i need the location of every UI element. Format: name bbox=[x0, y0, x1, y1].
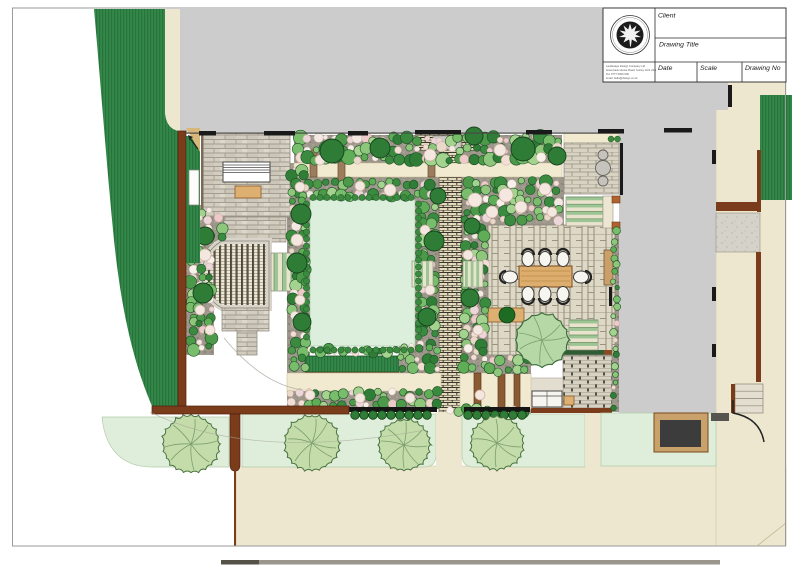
svg-text:Date: Date bbox=[658, 65, 673, 72]
svg-text:Drawing Title: Drawing Title bbox=[659, 42, 699, 49]
svg-text:Scale: Scale bbox=[700, 65, 717, 72]
svg-text:email: hello@design.co.uk: email: hello@design.co.uk bbox=[606, 76, 638, 80]
svg-text:Client: Client bbox=[658, 13, 676, 20]
svg-text:Greenview House Road, Surrey G: Greenview House Road, Surrey GU1 2AB bbox=[606, 68, 656, 72]
svg-text:Drawing No: Drawing No bbox=[745, 65, 781, 72]
svg-text:Tel: 0777 0000 000: Tel: 0777 0000 000 bbox=[606, 72, 629, 76]
svg-text:Landscape Design Company Ltd: Landscape Design Company Ltd bbox=[606, 64, 645, 68]
